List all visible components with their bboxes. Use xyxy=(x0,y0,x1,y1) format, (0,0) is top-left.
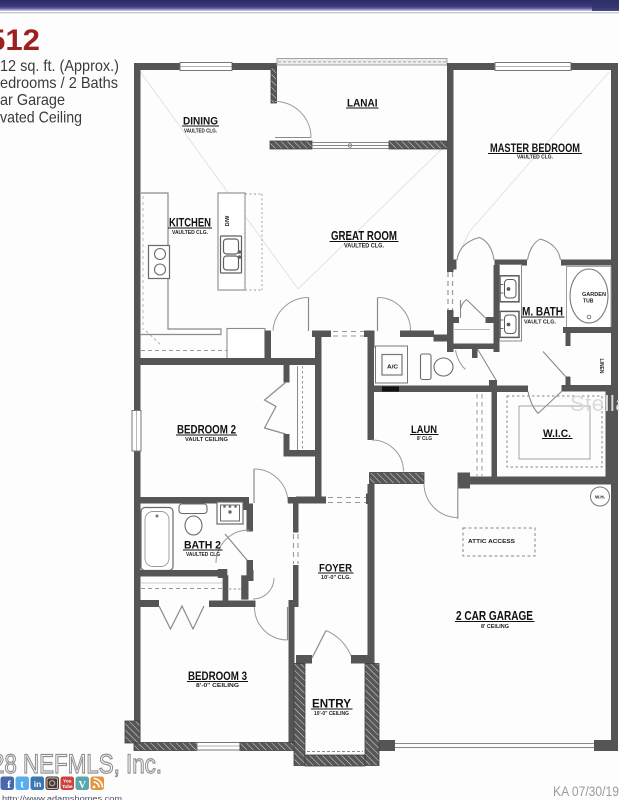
svg-text:VAULTED CLG: VAULTED CLG xyxy=(186,552,220,558)
svg-text:10'-0" CEILING: 10'-0" CEILING xyxy=(314,711,349,717)
svg-text:Tube: Tube xyxy=(62,784,73,789)
svg-text:D/W: D/W xyxy=(225,215,231,227)
svg-text:VAULTED CLG.: VAULTED CLG. xyxy=(344,244,384,250)
svg-text:GREAT ROOM: GREAT ROOM xyxy=(331,229,397,243)
svg-text:LINEN: LINEN xyxy=(598,359,604,374)
svg-text:edrooms / 2 Baths: edrooms / 2 Baths xyxy=(0,75,118,92)
svg-text:ATTIC ACCESS: ATTIC ACCESS xyxy=(468,539,515,545)
svg-text:ar Garage: ar Garage xyxy=(0,92,65,109)
svg-text:10'-0" CLG.: 10'-0" CLG. xyxy=(321,575,352,581)
svg-text:KA 07/30/19: KA 07/30/19 xyxy=(553,783,619,799)
svg-text:You: You xyxy=(63,779,72,784)
svg-text:VAULT CLG.: VAULT CLG. xyxy=(524,320,557,326)
svg-text:in: in xyxy=(34,779,42,789)
svg-text:12 sq. ft. (Approx.): 12 sq. ft. (Approx.) xyxy=(0,58,119,75)
svg-text:VAULTED CLG.: VAULTED CLG. xyxy=(172,230,208,236)
svg-text:A/C: A/C xyxy=(387,365,399,371)
svg-text:KITCHEN: KITCHEN xyxy=(169,216,211,230)
svg-text:8'-0" CEILING: 8'-0" CEILING xyxy=(196,683,239,689)
svg-text:http://www.adamshomes.com: http://www.adamshomes.com xyxy=(2,794,122,800)
svg-text:f: f xyxy=(7,779,11,791)
svg-text:VAULTED CLG.: VAULTED CLG. xyxy=(184,129,217,135)
svg-text:MASTER BEDROOM: MASTER BEDROOM xyxy=(490,141,580,155)
svg-text:512: 512 xyxy=(0,24,40,57)
svg-text:W.H.: W.H. xyxy=(595,495,605,500)
svg-text:VAULTED CLG.: VAULTED CLG. xyxy=(517,155,553,161)
svg-text:TUB: TUB xyxy=(583,299,594,305)
svg-text:2 CAR GARAGE: 2 CAR GARAGE xyxy=(456,608,533,623)
svg-text:8' CLG: 8' CLG xyxy=(417,436,432,442)
svg-text:Stella: Stella xyxy=(570,391,619,416)
svg-text:vated Ceiling: vated Ceiling xyxy=(0,110,82,127)
svg-text:GARDEN: GARDEN xyxy=(582,292,606,298)
svg-text:V: V xyxy=(79,780,87,791)
svg-text:VAULT CEILING: VAULT CEILING xyxy=(185,437,228,443)
svg-text:8' CEILING: 8' CEILING xyxy=(481,624,509,630)
svg-text:28 NEFMLS, Inc.: 28 NEFMLS, Inc. xyxy=(0,749,162,779)
svg-text:BEDROOM 2: BEDROOM 2 xyxy=(177,423,236,437)
